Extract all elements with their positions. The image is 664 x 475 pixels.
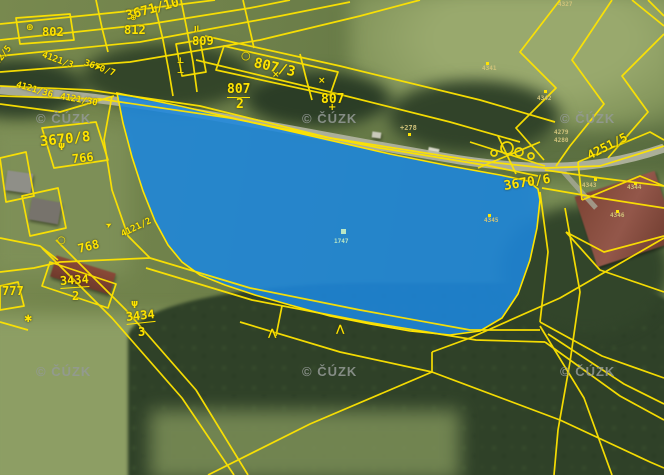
cadastral-map-viewport[interactable]: 8028128093671/10807/380728073670/74121/3… xyxy=(0,0,664,475)
parcel-center-marker xyxy=(341,229,346,234)
map-overlay-svg xyxy=(0,0,664,475)
